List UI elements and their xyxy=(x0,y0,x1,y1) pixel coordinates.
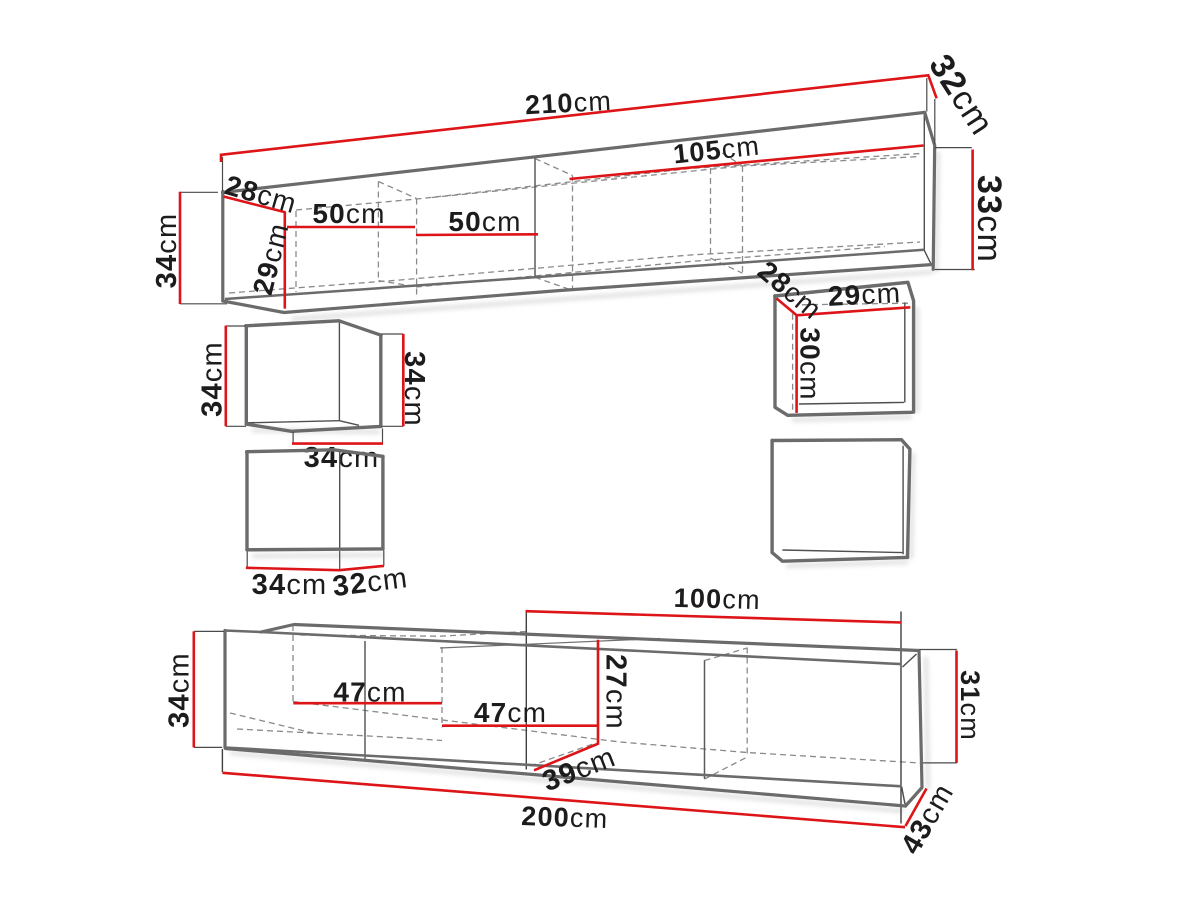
svg-text:50cm: 50cm xyxy=(448,206,521,237)
svg-text:50cm: 50cm xyxy=(312,198,385,229)
svg-text:32cm: 32cm xyxy=(921,48,1001,142)
svg-text:31cm: 31cm xyxy=(955,670,985,741)
svg-text:28cm: 28cm xyxy=(222,169,301,219)
svg-text:47cm: 47cm xyxy=(333,677,406,708)
svg-text:33cm: 33cm xyxy=(970,175,1008,263)
svg-text:34cm: 34cm xyxy=(398,351,430,427)
svg-text:30cm: 30cm xyxy=(795,327,826,400)
svg-text:34cm: 34cm xyxy=(197,341,229,417)
svg-text:47cm: 47cm xyxy=(474,697,547,728)
svg-text:34cm: 34cm xyxy=(151,213,183,289)
svg-text:29cm: 29cm xyxy=(247,219,295,298)
svg-text:200cm: 200cm xyxy=(521,801,609,834)
svg-text:34cm: 34cm xyxy=(304,442,380,474)
svg-text:27cm: 27cm xyxy=(600,654,632,730)
svg-text:32cm: 32cm xyxy=(331,562,410,603)
svg-text:43cm: 43cm xyxy=(895,778,961,860)
svg-text:34cm: 34cm xyxy=(164,652,196,728)
svg-text:210cm: 210cm xyxy=(524,86,613,121)
svg-text:29cm: 29cm xyxy=(827,277,902,312)
svg-text:105cm: 105cm xyxy=(672,131,762,170)
svg-text:100cm: 100cm xyxy=(673,583,761,615)
svg-text:39cm: 39cm xyxy=(538,741,620,798)
svg-text:34cm: 34cm xyxy=(252,569,328,601)
